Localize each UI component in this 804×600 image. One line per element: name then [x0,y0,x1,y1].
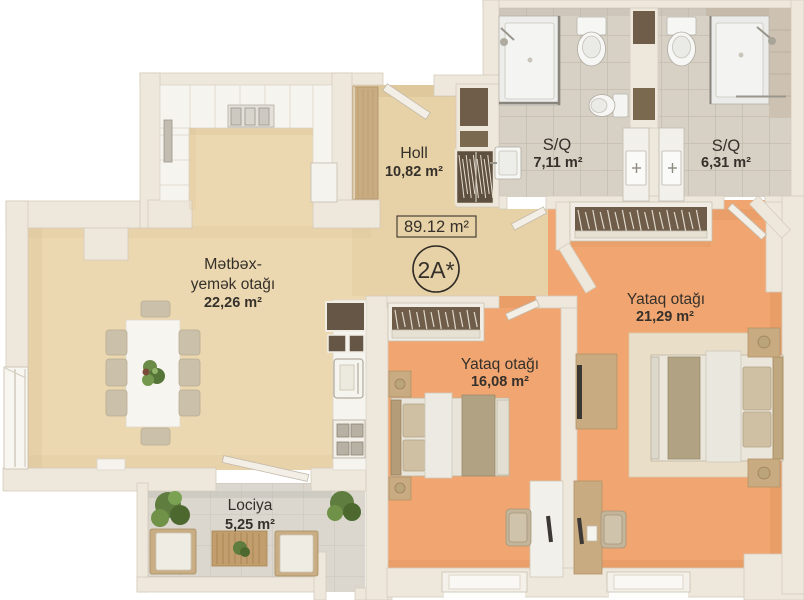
svg-text:yemək otağı: yemək otağı [191,276,275,293]
svg-text:2A*: 2A* [417,257,454,283]
svg-text:S/Q: S/Q [543,136,572,154]
svg-text:S/Q: S/Q [712,137,741,155]
svg-text:5,25 m²: 5,25 m² [225,517,275,533]
svg-text:21,29 m²: 21,29 m² [636,309,694,325]
svg-text:Holl: Holl [400,145,428,162]
svg-text:Yataq otağı: Yataq otağı [627,291,705,308]
svg-text:6,31 m²: 6,31 m² [701,155,751,171]
svg-text:10,82 m²: 10,82 m² [385,164,443,180]
svg-text:22,26 m²: 22,26 m² [204,295,262,311]
svg-text:89.12 m²: 89.12 m² [404,218,470,236]
svg-text:7,11 m²: 7,11 m² [533,155,582,171]
svg-text:Mətbəx-: Mətbəx- [204,256,262,273]
svg-text:Lociya: Lociya [228,497,273,514]
svg-text:16,08 m²: 16,08 m² [471,374,529,390]
svg-text:Yataq otağı: Yataq otağı [461,356,539,373]
